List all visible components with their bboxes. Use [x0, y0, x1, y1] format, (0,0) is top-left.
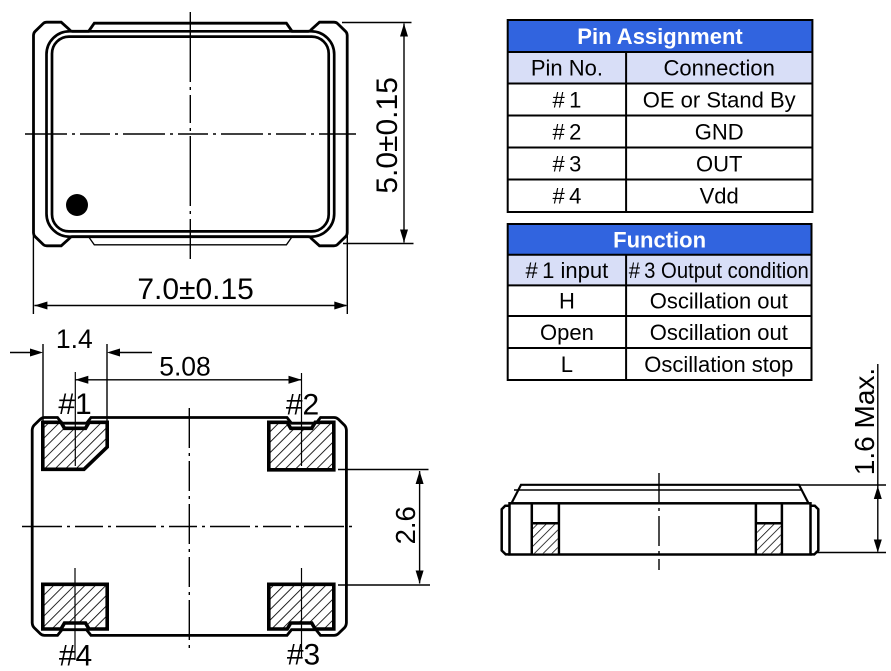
svg-text:1.6 Max.: 1.6 Max.: [849, 368, 880, 475]
svg-text:GND: GND: [695, 120, 744, 145]
svg-text:Oscillation stop: Oscillation stop: [644, 352, 793, 377]
svg-text:# 3 Output condition: # 3 Output condition: [629, 258, 809, 283]
svg-text:#4: #4: [59, 640, 92, 671]
svg-text:OUT: OUT: [696, 152, 742, 177]
svg-text:# 3: # 3: [552, 152, 581, 177]
svg-text:Oscillation out: Oscillation out: [650, 320, 788, 345]
svg-text:Open: Open: [540, 320, 594, 345]
svg-text:L: L: [561, 352, 573, 377]
svg-text:#2: #2: [286, 389, 319, 422]
svg-text:# 4: # 4: [552, 184, 581, 209]
svg-text:5.08: 5.08: [159, 352, 211, 382]
svg-text:5.0±0.15: 5.0±0.15: [371, 77, 404, 194]
svg-text:OE or Stand By: OE or Stand By: [643, 88, 796, 113]
svg-text:H: H: [559, 289, 575, 314]
svg-text:Connection: Connection: [664, 56, 775, 81]
svg-text:7.0±0.15: 7.0±0.15: [137, 273, 254, 306]
svg-text:Oscillation out: Oscillation out: [650, 289, 788, 314]
svg-text:# 1 input: # 1 input: [526, 258, 609, 283]
svg-text:Pin No.: Pin No.: [531, 56, 603, 81]
svg-text:Function: Function: [613, 228, 706, 253]
svg-text:#1: #1: [58, 388, 91, 421]
svg-text:#3: #3: [287, 639, 320, 671]
svg-text:# 1: # 1: [552, 88, 581, 113]
svg-text:2.6: 2.6: [390, 506, 421, 544]
svg-text:1.4: 1.4: [56, 324, 93, 354]
svg-text:# 2: # 2: [552, 120, 581, 145]
svg-text:Pin Assignment: Pin Assignment: [577, 24, 743, 49]
svg-text:Vdd: Vdd: [700, 184, 739, 209]
